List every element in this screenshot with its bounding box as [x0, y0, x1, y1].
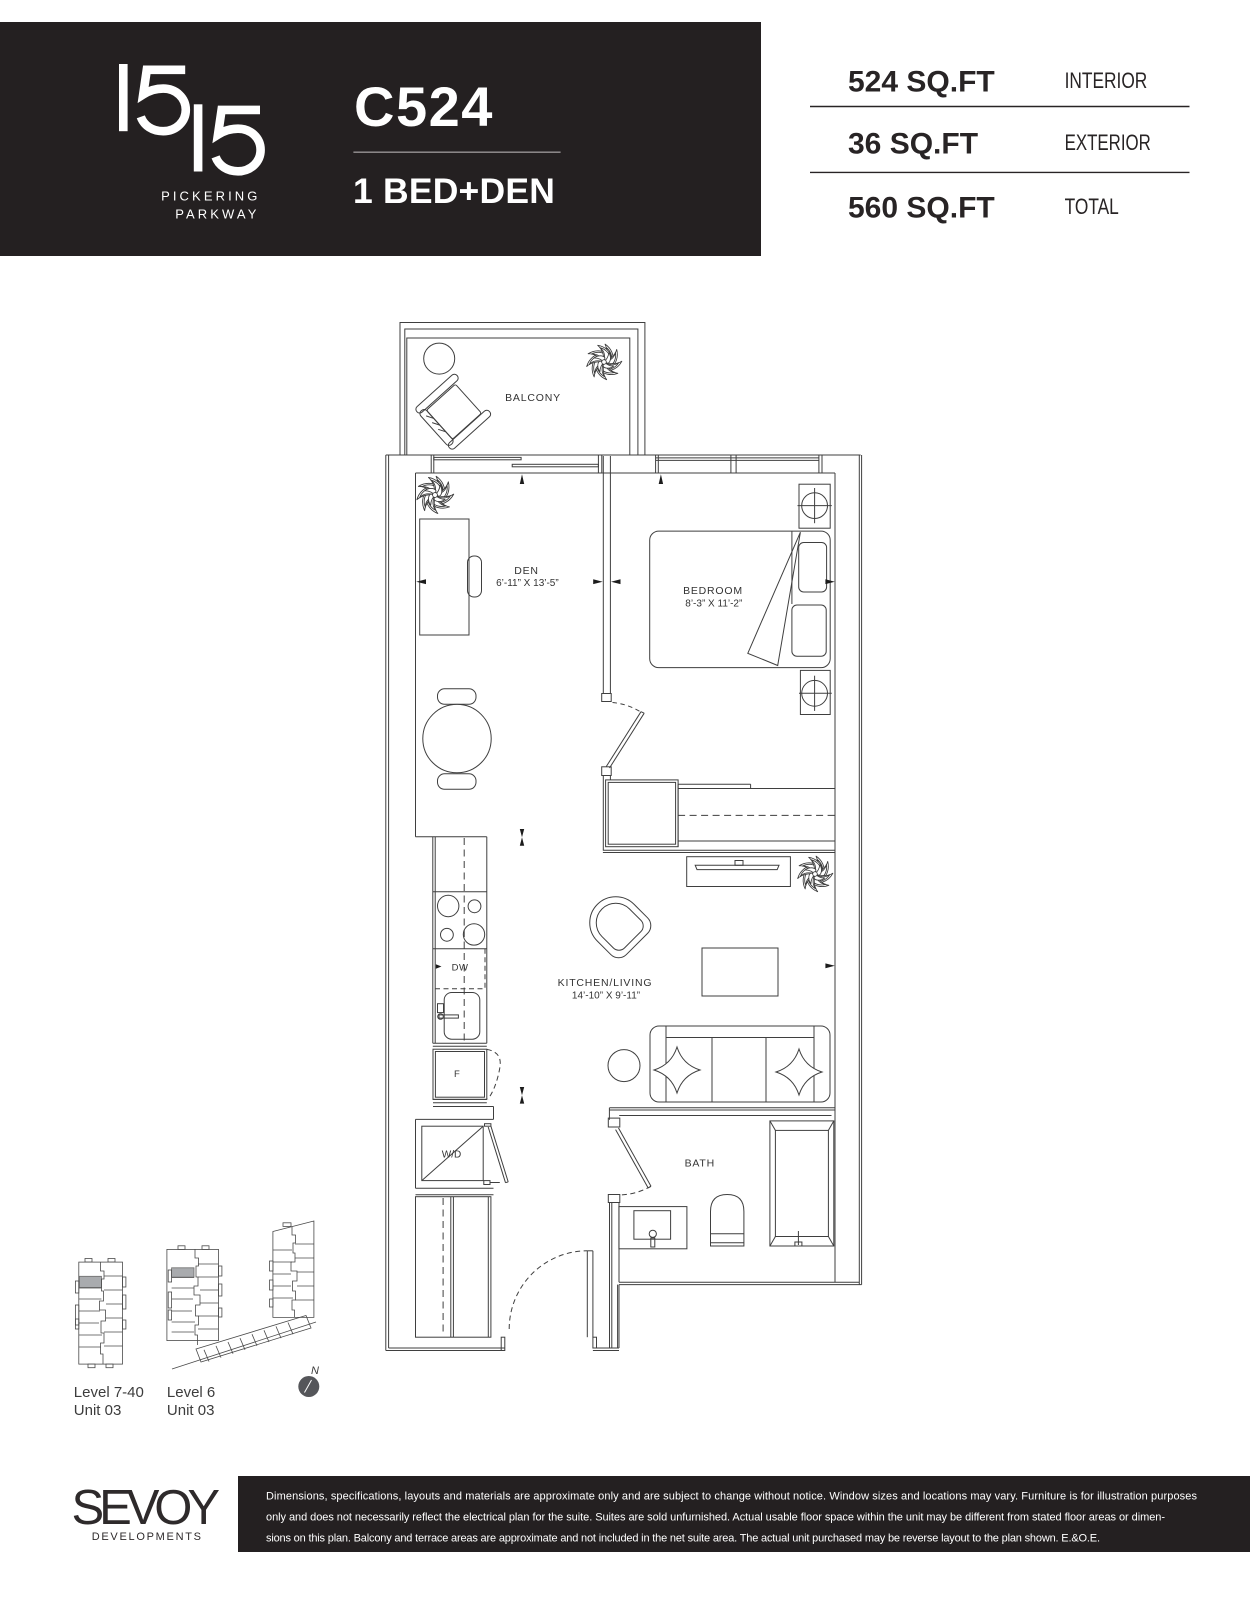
- svg-text:524 SQ.FT: 524 SQ.FT: [848, 65, 995, 98]
- svg-text:Level 6: Level 6: [167, 1384, 215, 1401]
- svg-text:KITCHEN/LIVING: KITCHEN/LIVING: [558, 977, 653, 989]
- svg-text:BATH: BATH: [685, 1158, 715, 1170]
- svg-text:14’-10” X 9’-11”: 14’-10” X 9’-11”: [572, 990, 640, 1001]
- svg-text:Unit 03: Unit 03: [74, 1402, 122, 1419]
- svg-text:BALCONY: BALCONY: [505, 392, 561, 404]
- svg-text:6’-11” X 13’-5”: 6’-11” X 13’-5”: [496, 578, 559, 589]
- svg-text:SEVOY: SEVOY: [72, 1481, 221, 1535]
- svg-text:Level 7-40: Level 7-40: [74, 1384, 144, 1401]
- svg-text:W/D: W/D: [442, 1150, 461, 1161]
- svg-text:EXTERIOR: EXTERIOR: [1065, 131, 1151, 156]
- svg-text:INTERIOR: INTERIOR: [1065, 69, 1148, 94]
- svg-text:DEN: DEN: [514, 565, 539, 577]
- svg-text:PARKWAY: PARKWAY: [175, 206, 259, 221]
- svg-text:only and does not necessarily: only and does not necessarily reflect th…: [266, 1512, 1165, 1524]
- svg-text:36 SQ.FT: 36 SQ.FT: [848, 128, 978, 161]
- svg-text:BEDROOM: BEDROOM: [683, 585, 743, 597]
- svg-text:F: F: [454, 1069, 460, 1080]
- svg-text:TOTAL: TOTAL: [1065, 195, 1119, 220]
- svg-text:N: N: [311, 1365, 319, 1377]
- svg-text:8’-3” X 11’-2”: 8’-3” X 11’-2”: [685, 598, 742, 609]
- svg-text:PICKERING: PICKERING: [161, 189, 260, 204]
- svg-text:Dimensions, specifications, la: Dimensions, specifications, layouts and …: [266, 1491, 1198, 1503]
- svg-text:Unit 03: Unit 03: [167, 1402, 215, 1419]
- svg-text:DW: DW: [452, 962, 469, 973]
- svg-text:560 SQ.FT: 560 SQ.FT: [848, 191, 995, 224]
- svg-text:DEVELOPMENTS: DEVELOPMENTS: [92, 1531, 206, 1543]
- svg-text:1 BED+DEN: 1 BED+DEN: [353, 171, 555, 211]
- svg-text:C524: C524: [354, 75, 494, 138]
- svg-text:sions on this plan. Balcony an: sions on this plan. Balcony and terrace …: [266, 1533, 1100, 1545]
